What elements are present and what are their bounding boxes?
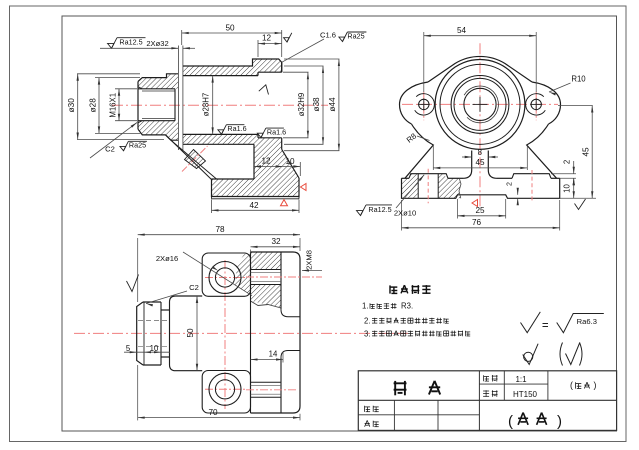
svg-text:2XM8: 2XM8 [305, 250, 314, 270]
svg-text:8: 8 [478, 148, 482, 157]
svg-text:Ra25: Ra25 [347, 32, 364, 41]
svg-text:M16X1: M16X1 [109, 93, 118, 118]
svg-text:10: 10 [563, 184, 572, 193]
svg-text:): ) [594, 380, 597, 390]
svg-text:C1.6: C1.6 [320, 31, 336, 40]
svg-text:Ra12.5: Ra12.5 [368, 205, 391, 214]
svg-text:10: 10 [285, 157, 295, 166]
svg-text:R10: R10 [571, 75, 586, 84]
svg-text:Ra1.6: Ra1.6 [267, 128, 286, 137]
svg-text:42: 42 [249, 201, 259, 210]
svg-text:2Xø10: 2Xø10 [394, 209, 416, 218]
svg-text:76: 76 [472, 218, 482, 227]
svg-text:ø30: ø30 [67, 98, 76, 113]
svg-text:2Xø32: 2Xø32 [146, 39, 168, 48]
svg-text:2: 2 [563, 160, 572, 164]
svg-text:1:1: 1:1 [515, 375, 527, 384]
svg-text:1.: 1. [362, 302, 369, 311]
svg-text:(: ( [570, 380, 573, 390]
svg-text:ø28H7: ø28H7 [201, 93, 210, 116]
svg-text:45: 45 [581, 147, 590, 157]
svg-text:Ra12.5: Ra12.5 [119, 38, 142, 47]
svg-text:3.: 3. [364, 329, 371, 338]
svg-text:ø38: ø38 [312, 97, 321, 112]
svg-text:5: 5 [126, 344, 131, 353]
svg-text:ø44: ø44 [328, 97, 337, 112]
svg-text:2Xø16: 2Xø16 [156, 254, 178, 263]
svg-text:): ) [557, 413, 562, 430]
svg-text:12: 12 [261, 157, 271, 166]
svg-text:14: 14 [269, 349, 278, 358]
svg-text:HT150: HT150 [513, 390, 538, 399]
svg-text:2.: 2. [364, 316, 371, 325]
svg-text:25: 25 [475, 206, 485, 215]
svg-text:Ra25: Ra25 [129, 141, 146, 150]
svg-text:50: 50 [225, 24, 235, 33]
svg-text:2: 2 [505, 182, 514, 186]
svg-text:Ra6.3: Ra6.3 [577, 317, 597, 326]
svg-text:78: 78 [215, 225, 225, 234]
svg-text:12: 12 [262, 34, 272, 43]
svg-text:45: 45 [475, 158, 485, 167]
svg-text:(: ( [508, 413, 513, 430]
svg-text:70: 70 [208, 408, 218, 417]
svg-text:50: 50 [186, 328, 195, 338]
svg-text:32: 32 [271, 237, 281, 246]
svg-text:ø32H9: ø32H9 [297, 93, 306, 116]
svg-text:ø28: ø28 [89, 98, 98, 113]
svg-text:Ra1.6: Ra1.6 [227, 124, 246, 133]
svg-text:R3.: R3. [401, 302, 413, 311]
svg-text:10: 10 [150, 344, 159, 353]
svg-text:54: 54 [457, 26, 467, 35]
svg-text:C2: C2 [189, 283, 199, 292]
